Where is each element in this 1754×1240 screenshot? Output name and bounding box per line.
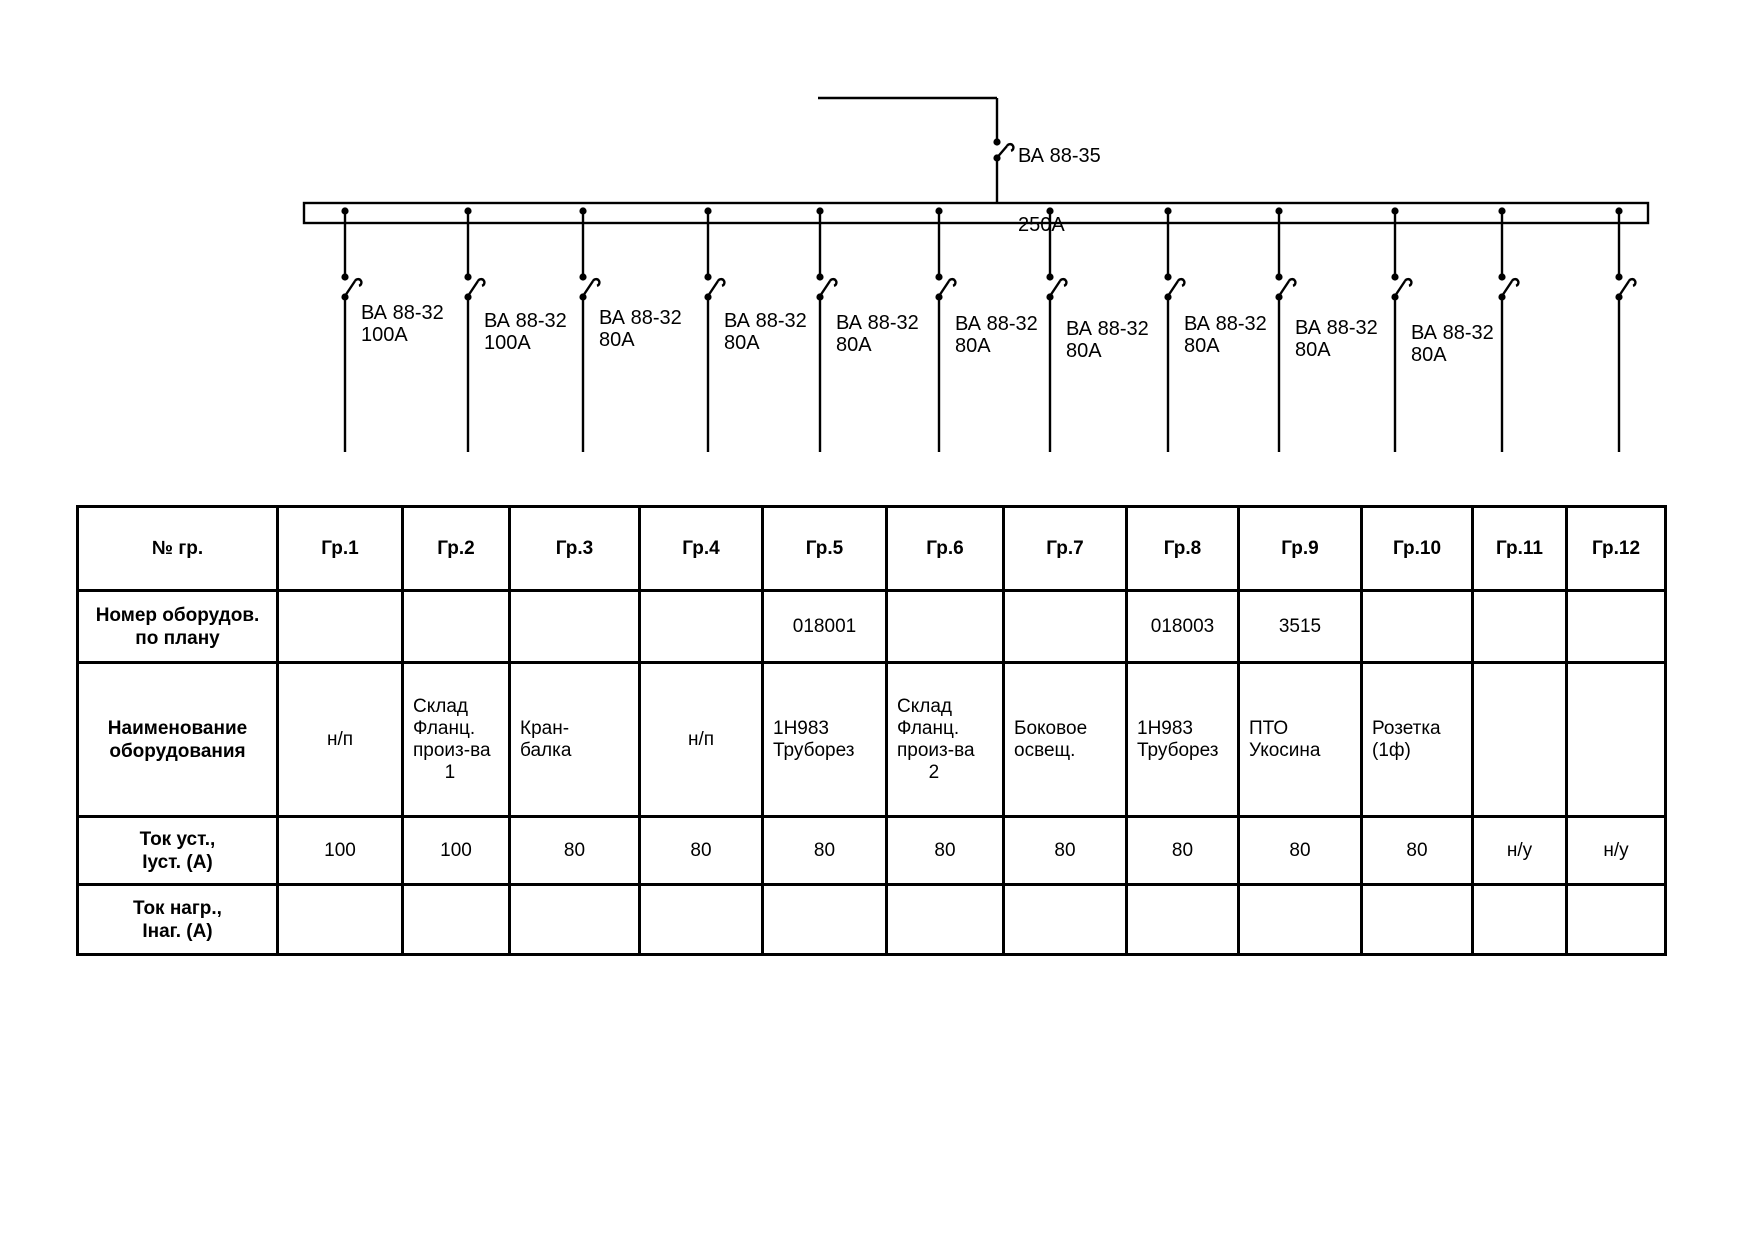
feeder-breaker-contact [816,273,823,280]
table-cell: 018001 [763,591,887,663]
group-header: Гр.6 [887,507,1004,591]
main-breaker-contact [993,138,1000,145]
feeder-breaker-label: ВА 88-32 80А [599,307,682,351]
group-header: Гр.1 [278,507,403,591]
table-cell [1473,885,1567,955]
feeder-breaker-blade [1393,281,1405,299]
feeder-breaker-blade [937,281,949,299]
table-cell [1362,885,1473,955]
table-cell: 1Н983 Труборез [1127,663,1239,817]
table-cell [640,591,763,663]
feeder-breaker-hook [355,279,361,286]
feeder-breaker-contact [1615,273,1622,280]
table-cell: 018003 [1127,591,1239,663]
feeder-breaker-blade [466,281,478,299]
feeder-breaker-contact [1391,273,1398,280]
row-label: Наименование оборудования [78,663,278,817]
table-cell [763,885,887,955]
feeder-breaker-label: ВА 88-32 80А [1066,318,1149,362]
feeder-breaker-contact [935,273,942,280]
main-breaker-blade [995,146,1007,160]
group-header: Гр.8 [1127,507,1239,591]
feeder-breaker-blade [706,281,718,299]
table-cell: 80 [1004,817,1127,885]
feeder-breaker-blade [1500,281,1512,299]
table-cell [1004,591,1127,663]
table-cell [403,591,510,663]
group-header: Гр.9 [1239,507,1362,591]
row-label: Ток уст., Iуст. (А) [78,817,278,885]
feeder-breaker-contact [1275,273,1282,280]
table-cell: 80 [1362,817,1473,885]
table-cell: н/п [640,663,763,817]
table-cell: Склад Фланц. произ-ва 2 [887,663,1004,817]
feeder-breaker-contact [1164,273,1171,280]
feeder-breaker-label: ВА 88-32 80А [1411,322,1494,366]
table-cell: Боковое освещ. [1004,663,1127,817]
single-line-diagram [0,0,1754,480]
row-label: Номер оборудов. по плану [78,591,278,663]
table-cell [510,885,640,955]
main-breaker-hook [1007,144,1013,151]
feeder-breaker-hook [1405,279,1411,286]
group-header: Гр.11 [1473,507,1567,591]
table-cell: н/п [278,663,403,817]
main-breaker-rating: 250А [1018,213,1101,238]
feeder-breaker-hook [830,279,836,286]
table-cell [1567,885,1666,955]
feeder-breaker-label: ВА 88-32 100А [484,310,567,354]
table-cell: 3515 [1239,591,1362,663]
feeder-breaker-blade [1277,281,1289,299]
table-cell [1473,591,1567,663]
table-cell: н/у [1567,817,1666,885]
table-cell [1567,663,1666,817]
feeder-breaker-hook [1289,279,1295,286]
table-cell [1239,885,1362,955]
table-cell: 80 [887,817,1004,885]
table-cell: ПТО Укосина [1239,663,1362,817]
row-label-group-number: № гр. [78,507,278,591]
table-cell: 100 [403,817,510,885]
feeder-breaker-blade [1617,281,1629,299]
feeder-breaker-blade [1048,281,1060,299]
table-cell [887,885,1004,955]
load-group-table: № гр. Гр.1Гр.2Гр.3Гр.4Гр.5Гр.6Гр.7Гр.8Гр… [76,505,1667,956]
table-cell [403,885,510,955]
main-breaker-model: ВА 88-35 [1018,144,1101,169]
table-cell: 80 [1239,817,1362,885]
group-header: Гр.10 [1362,507,1473,591]
table-cell [1473,663,1567,817]
feeder-breaker-blade [581,281,593,299]
table-cell [278,591,403,663]
table-cell: 80 [1127,817,1239,885]
feeder-breaker-contact [464,273,471,280]
feeder-breaker-label: ВА 88-32 80А [955,313,1038,357]
feeder-breaker-contact [704,273,711,280]
electrical-scheme-page: ВА 88-35 250А ВА 88-32 100АВА 88-32 100А… [0,0,1754,1240]
feeder-breaker-label: ВА 88-32 80А [1295,317,1378,361]
table-cell [278,885,403,955]
table-cell: Розетка (1ф) [1362,663,1473,817]
table-cell [1004,885,1127,955]
feeder-breaker-contact [579,273,586,280]
table-cell [640,885,763,955]
feeder-breaker-hook [949,279,955,286]
feeder-breaker-hook [478,279,484,286]
feeder-breaker-label: ВА 88-32 80А [724,310,807,354]
feeder-breaker-hook [1178,279,1184,286]
feeder-breaker-hook [1512,279,1518,286]
table-cell: н/у [1473,817,1567,885]
busbar [304,203,1648,223]
main-breaker-label: ВА 88-35 250А [1018,100,1101,282]
table-cell: 80 [640,817,763,885]
row-label: Ток нагр., Iнаг. (А) [78,885,278,955]
table-cell: Кран- балка [510,663,640,817]
feeder-breaker-hook [593,279,599,286]
feeder-breaker-blade [818,281,830,299]
feeder-breaker-contact [341,273,348,280]
table-cell: 80 [510,817,640,885]
feeder-breaker-label: ВА 88-32 100А [361,302,444,346]
feeder-breaker-label: ВА 88-32 80А [836,312,919,356]
table-cell [887,591,1004,663]
feeder-breaker-contact [1498,273,1505,280]
group-header: Гр.12 [1567,507,1666,591]
feeder-breaker-label: ВА 88-32 80А [1184,313,1267,357]
table-cell [1362,591,1473,663]
feeder-breaker-blade [343,281,355,299]
table-cell: 80 [763,817,887,885]
group-header: Гр.4 [640,507,763,591]
group-header: Гр.2 [403,507,510,591]
table-cell: 100 [278,817,403,885]
group-header: Гр.5 [763,507,887,591]
table-cell: 1Н983 Труборез [763,663,887,817]
group-header: Гр.7 [1004,507,1127,591]
table-cell [1127,885,1239,955]
feeder-breaker-hook [1629,279,1635,286]
group-header: Гр.3 [510,507,640,591]
feeder-breaker-hook [718,279,724,286]
feeder-breaker-blade [1166,281,1178,299]
table-cell [1567,591,1666,663]
table-cell [510,591,640,663]
table-cell: Склад Фланц. произ-ва 1 [403,663,510,817]
